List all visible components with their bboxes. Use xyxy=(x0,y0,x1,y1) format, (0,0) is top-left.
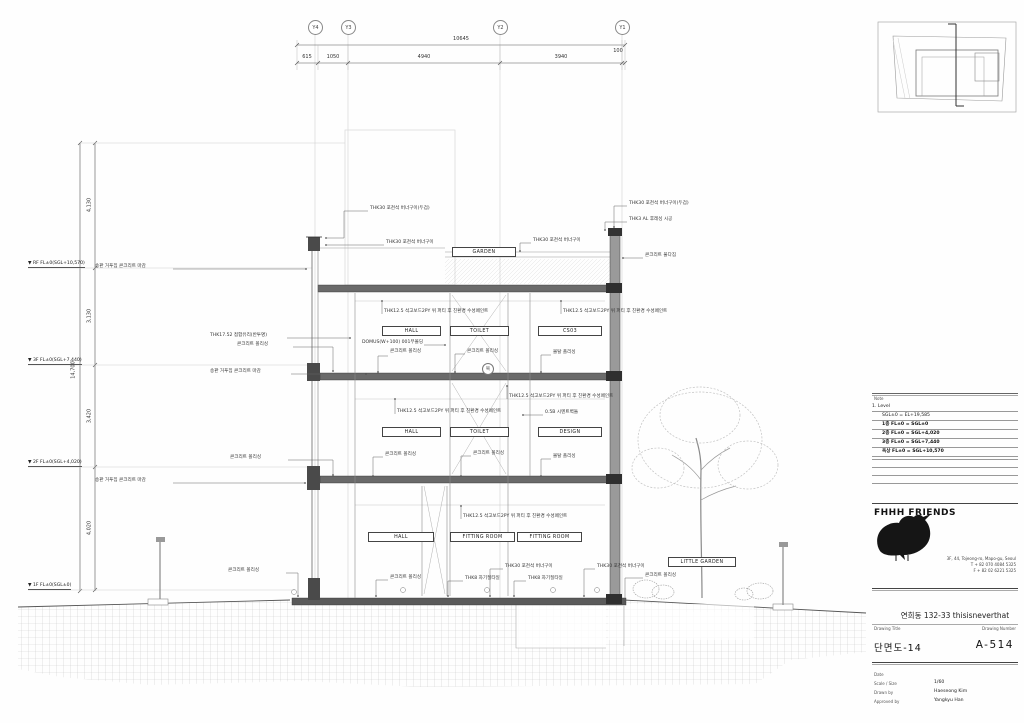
dim-label: 100 xyxy=(613,49,623,54)
grid-bubble: Y3 xyxy=(341,20,356,35)
annotation-label: 콘크리트 폴리싱 xyxy=(228,569,259,574)
dim-label: 4940 xyxy=(418,55,431,60)
labels-layer: 복 Y4Y3Y2Y11064561510504940394010014,7004… xyxy=(0,0,1024,723)
annotation-label: THK30 포천석 버너구이 xyxy=(597,565,645,570)
room-label: CS03 xyxy=(538,326,602,336)
annotation-label: 콘크리트 폴리싱 xyxy=(390,350,421,355)
room-label: FITTING ROOM xyxy=(450,532,515,542)
note-rows: 1. LevelSGL±0 = EL+19,5851층 FL±0 = SGL±0… xyxy=(872,403,1018,457)
annotation-label: THK30 포천석 버너구이(두겁) xyxy=(629,202,689,207)
note-row: 2층 FL±0 = SGL+4,020 xyxy=(872,430,1018,439)
dim-label: 3,130 xyxy=(88,309,93,323)
annotation-label: 콘크리트 폴리싱 xyxy=(385,453,416,458)
annotation-label: THK17.52 접합유리(반투명) xyxy=(210,334,267,339)
level-marker: ▼ 3F FL±0(SGL+7,440) xyxy=(28,359,82,365)
annotation-label: THK12.5 석고보드2PY 위 퍼티 후 친환경 수성페인트 xyxy=(563,310,667,315)
keynote-bubble: 복 xyxy=(482,363,494,375)
drawing-sheet: 복 Y4Y3Y2Y11064561510504940394010014,7004… xyxy=(0,0,1024,723)
drawing-title: 단면도-14 xyxy=(874,640,922,654)
scale-value: 1/60 xyxy=(934,680,944,685)
dim-label: 4,130 xyxy=(88,198,93,212)
firm-name: FHHH FRIENDS xyxy=(874,508,956,518)
annotation-label: 콘크리트 폴리싱 xyxy=(390,576,421,581)
level-marker: ▼ 2F FL±0(SGL+4,020) xyxy=(28,461,82,467)
annotation-label: 콘크리트 폴리싱 xyxy=(467,350,498,355)
annotation-label: THK12.5 석고보드2PY 위 퍼티 후 친환경 수성페인트 xyxy=(509,395,613,400)
annotation-label: 콘크리트 폴리싱 xyxy=(230,456,261,461)
title-block: Note 1. LevelSGL±0 = EL+19,5851층 FL±0 = … xyxy=(872,0,1018,723)
annotation-label: THK30 포천석 버너구이 xyxy=(386,241,434,246)
annotation-label: THK12.5 석고보드2PY 위 퍼티 후 친환경 수성페인트 xyxy=(397,410,501,415)
annotation-label: 몰탈 폴리싱 xyxy=(553,455,576,460)
note-row: 3층 FL±0 = SGL+7,440 xyxy=(872,439,1018,448)
approved-by-value: Yangkyu Han xyxy=(934,698,964,703)
level-marker: ▼ RF FL±0(SGL+10,570) xyxy=(28,262,85,268)
dim-label: 3940 xyxy=(555,55,568,60)
drawn-by-value: Haeseong Kim xyxy=(934,689,967,694)
note-row: 1층 FL±0 = SGL±0 xyxy=(872,421,1018,430)
annotation-label: THK8 자기질타일 xyxy=(465,577,500,582)
drawing-title-label: Drawing Title xyxy=(874,627,900,631)
note-row: 1. Level xyxy=(872,403,1018,412)
date-label: Date xyxy=(874,672,884,677)
annotation-label: 콘크리트 폴리싱 xyxy=(645,574,676,579)
drawing-number-label: Drawing Number xyxy=(982,627,1016,631)
room-label: TOILET xyxy=(450,427,509,437)
annotation-label: THK8 자기질타일 xyxy=(528,577,563,582)
annotation-label: 송판 거푸집 콘크리트 마감 xyxy=(95,479,146,484)
annotation-label: THK30 포천석 버너구이 xyxy=(505,565,553,570)
room-label: DESIGN xyxy=(538,427,602,437)
note-row: SGL±0 = EL+19,585 xyxy=(872,412,1018,421)
room-label: GARDEN xyxy=(452,247,516,257)
room-label: HALL xyxy=(382,427,441,437)
room-label: HALL xyxy=(368,532,434,542)
annotation-label: THK3 AL 후레싱 시공 xyxy=(629,218,672,223)
annotation-label: 콘크리트 물다짐 xyxy=(645,254,676,259)
approved-by-label: Approved by xyxy=(874,699,899,704)
dim-label: 10645 xyxy=(453,37,469,42)
dim-label: 4,020 xyxy=(88,521,93,535)
dim-label: 615 xyxy=(302,55,312,60)
annotation-label: 콘크리트 폴리싱 xyxy=(237,343,268,348)
level-marker: ▼ 1F FL±0(SGL±0) xyxy=(28,584,71,590)
room-label: HALL xyxy=(382,326,441,336)
annotation-label: 송판 거푸집 콘크리트 마감 xyxy=(210,370,261,375)
note-title: Note xyxy=(874,397,883,401)
drawn-by-label: Drawn by xyxy=(874,690,893,695)
drawing-number: A-514 xyxy=(976,639,1014,651)
grid-bubble: Y1 xyxy=(615,20,630,35)
room-label: LITTLE GARDEN xyxy=(668,557,736,567)
annotation-label: THK30 포천석 버너구이 xyxy=(533,239,581,244)
annotation-label: THK12.5 석고보드2PY 위 퍼티 후 친환경 수성페인트 xyxy=(384,310,488,315)
annotation-label: THK12.5 석고보드2PY 위 퍼티 후 친환경 수성페인트 xyxy=(463,515,567,520)
firm-address: 3F, 44, Tojeong-ro, Mapo-gu, Seoul T + 8… xyxy=(947,556,1016,574)
dim-label: 1050 xyxy=(327,55,340,60)
scale-label: Scale / Size xyxy=(874,681,897,686)
annotation-label: THK30 포천석 버너구이(두겁) xyxy=(370,207,430,212)
grid-bubble: Y4 xyxy=(308,20,323,35)
annotation-label: 몰탈 폴리싱 xyxy=(553,351,576,356)
dim-label: 3,420 xyxy=(88,409,93,423)
annotation-label: 0.5B 시멘트벽돌 xyxy=(545,411,578,416)
annotation-label: 송판 거푸집 콘크리트 마감 xyxy=(95,265,146,270)
room-label: TOILET xyxy=(450,326,509,336)
project-name: 연희동 132-33 thisisneverthat xyxy=(892,610,1018,621)
firm-address-line: F + 82 02 6221 5325 xyxy=(947,568,1016,574)
annotation-label: 콘크리트 폴리싱 xyxy=(473,452,504,457)
grid-bubble: Y2 xyxy=(493,20,508,35)
annotation-label: DOMUS(W+100) 001무몰딩 xyxy=(362,341,423,346)
room-label: FITTING ROOM xyxy=(517,532,582,542)
